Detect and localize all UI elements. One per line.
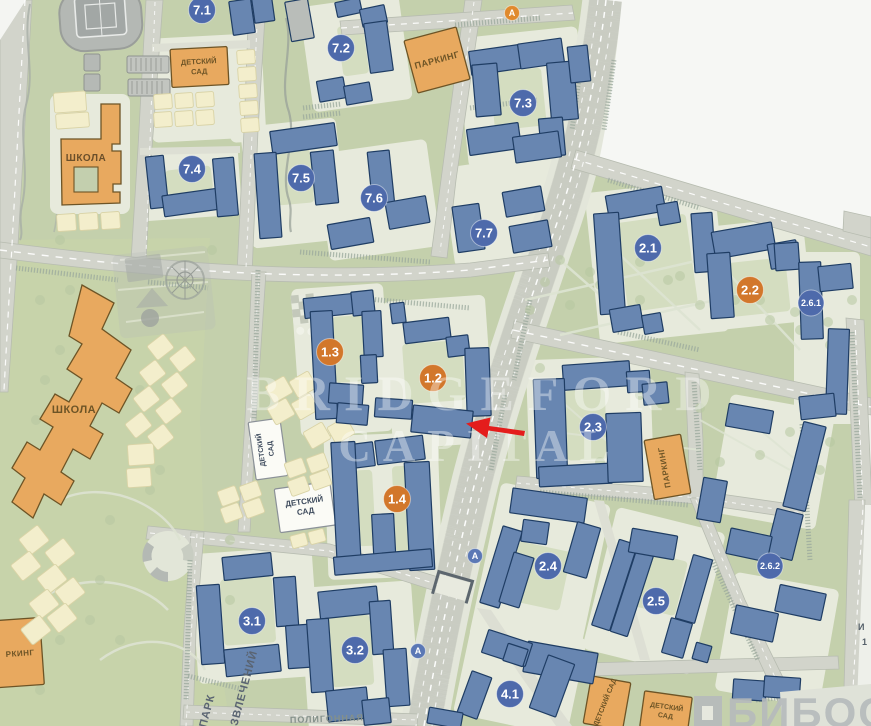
svg-text:7.1: 7.1 [193, 3, 211, 18]
svg-text:ШКОЛА: ШКОЛА [52, 404, 96, 416]
svg-text:7.4: 7.4 [183, 162, 202, 177]
svg-text:А: А [509, 8, 516, 18]
svg-text:БИБОС: БИБОС [727, 689, 871, 726]
svg-text:А: А [415, 646, 422, 656]
svg-text:2.6.2: 2.6.2 [760, 561, 780, 571]
svg-text:7.2: 7.2 [332, 41, 350, 56]
svg-text:2.6.1: 2.6.1 [801, 298, 821, 308]
svg-text:3.1: 3.1 [243, 614, 261, 629]
svg-text:САД: САД [191, 67, 208, 77]
svg-text:ДЕТСКИЙ: ДЕТСКИЙ [181, 56, 217, 67]
svg-text:4.1: 4.1 [501, 687, 519, 702]
svg-text:1: 1 [862, 637, 867, 647]
svg-text:7.3: 7.3 [514, 96, 532, 111]
svg-text:7.5: 7.5 [292, 171, 310, 186]
svg-text:7.6: 7.6 [365, 191, 383, 206]
svg-text:BRIDGEFORD: BRIDGEFORD [247, 365, 726, 421]
svg-text:2.2: 2.2 [741, 283, 759, 298]
svg-text:7.7: 7.7 [475, 226, 493, 241]
svg-text:А: А [472, 551, 479, 561]
svg-text:3.2: 3.2 [346, 643, 364, 658]
svg-text:1.4: 1.4 [388, 492, 407, 507]
svg-text:2.5: 2.5 [647, 594, 665, 609]
svg-text:1.3: 1.3 [321, 345, 339, 360]
svg-text:ШКОЛА: ШКОЛА [66, 153, 106, 164]
svg-text:2.4: 2.4 [539, 559, 558, 574]
svg-text:2.1: 2.1 [639, 241, 657, 256]
svg-text:И: И [858, 622, 864, 632]
